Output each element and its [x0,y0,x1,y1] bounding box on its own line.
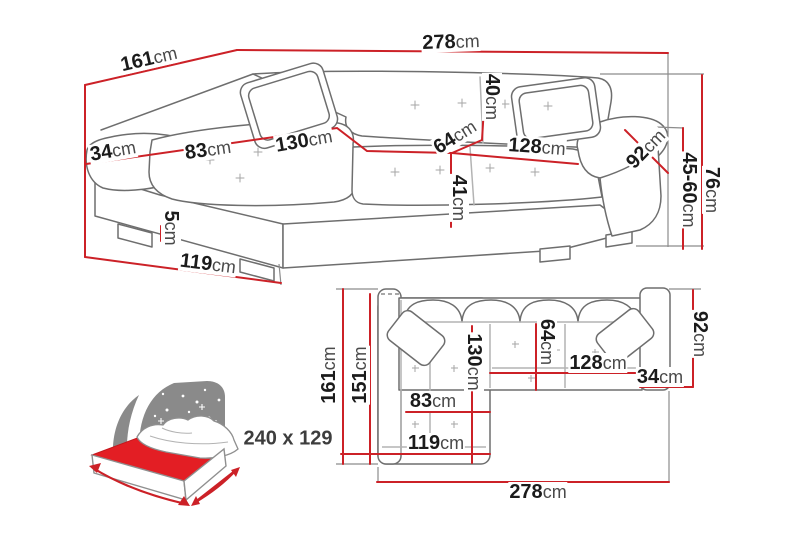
dim-plan-chaise-inner-length: 151cm [350,345,370,404]
dim-plan-right-seat-width: 128cm [568,353,627,373]
sofa-3d-sketch [86,61,668,281]
dim-3d-total-width: 278cm [421,31,481,53]
sleeping-area-size-label: 240 x 129 [244,428,333,451]
dim-3d-right-seat-width: 128cm [507,135,568,159]
diagram-canvas [0,0,800,533]
dim-plan-total-width: 278cm [508,482,567,502]
dim-3d-backrest-depth: 40cm [482,73,502,121]
dim-plan-right-armrest-length: 92cm [690,310,710,358]
dim-3d-total-height: 76cm [702,166,722,214]
furniture-dimension-diagram: 278cm 161cm 34cm 83cm 130cm 40cm 64cm 12… [0,0,800,533]
dim-plan-right-armrest-width: 34cm [636,367,684,387]
sleeping-function-icon [89,381,240,506]
dim-3d-leg-height: 5cm [161,209,181,246]
dim-plan-chaise-front-width: 119cm [407,433,465,453]
dim-3d-seat-height: 41cm [449,174,469,222]
dim-plan-total-depth: 161cm [319,345,339,404]
dim-plan-chaise-seat-width: 83cm [409,391,457,411]
dim-3d-armrest-height-range: 45-60cm [679,151,699,228]
dim-plan-chaise-length: 130cm [464,332,484,391]
dim-plan-seat-depth: 64cm [537,318,557,366]
